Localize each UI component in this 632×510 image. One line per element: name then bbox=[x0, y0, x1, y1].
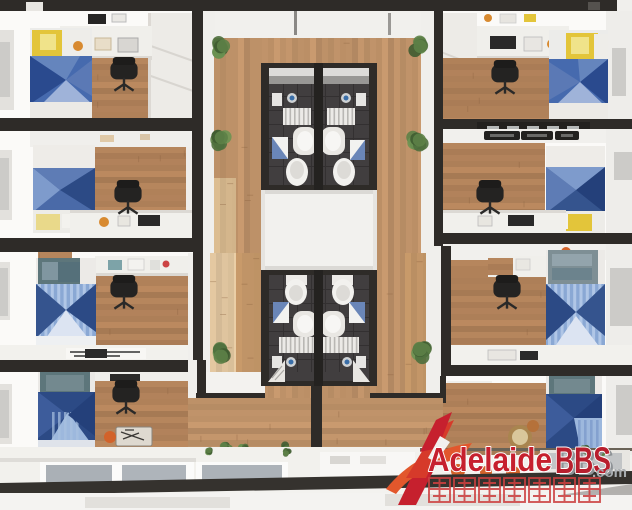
svg-text:Adelaide: Adelaide bbox=[428, 441, 552, 478]
